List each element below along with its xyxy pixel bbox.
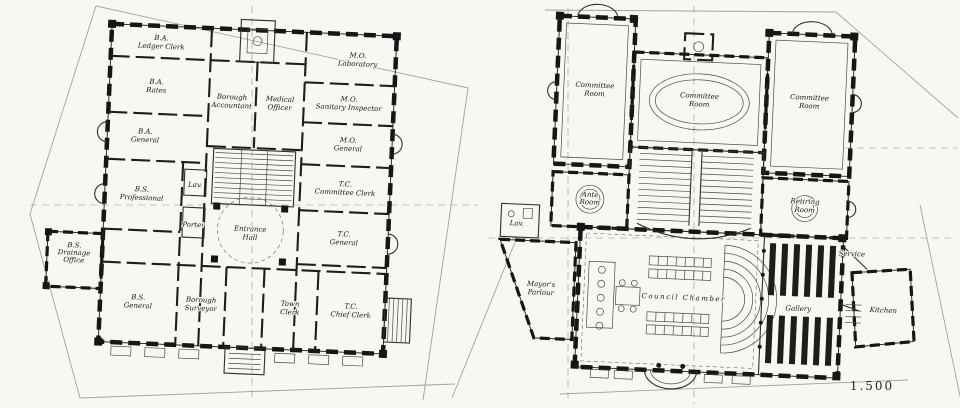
council-dais: [586, 261, 641, 331]
room-label-mayors-parlour: Mayor'sParlour: [525, 280, 555, 298]
room-label-ante-room: AnteRoom: [578, 190, 600, 206]
main-staircase: [211, 148, 295, 207]
room-label-committee-room-left: CommitteeRoom: [575, 81, 615, 99]
side-stair: [383, 298, 411, 343]
site-boundary-lines: [30, 6, 960, 400]
room-label-tc-chief-clerk: T.C.Chief Clerk: [330, 302, 371, 320]
room-label-medical-officer: MedicalOfficer: [264, 95, 294, 113]
room-label-mo-sanitary-inspector: M.O.Sanitary Inspector: [316, 94, 383, 113]
ground-floor-plan: B.A.Ledger ClerkB.A.RatesBoroughAccounta…: [39, 11, 423, 381]
room-label-mo-laboratory: M.O.Laboratory: [337, 51, 379, 69]
room-label-committee-room-centre: CommitteeRoom: [680, 91, 720, 109]
room-label-tc-committee-clerk: T.C.Committee Clerk: [315, 179, 376, 198]
room-label-borough-surveyor: BoroughSurveyor: [184, 295, 218, 313]
room-label-porter: Porter: [181, 220, 205, 229]
room-label-bs-professional: B.S.Professional: [119, 184, 164, 202]
lav-fixtures: [508, 208, 532, 219]
room-label-town-clerk: TownClerk: [280, 300, 300, 317]
room-label-ba-general: B.A.General: [131, 127, 160, 145]
floor-plan-drawing: B.A.Ledger ClerkB.A.RatesBoroughAccounta…: [0, 0, 960, 408]
room-label-committee-room-right: CommitteeRoom: [790, 93, 830, 111]
room-label-kitchen: Kitchen: [869, 306, 898, 315]
scale-label: 1.500: [850, 379, 894, 393]
apse: [644, 362, 697, 390]
room-label-bs-general: B.S.General: [124, 293, 153, 311]
room-label-service: Service: [838, 249, 865, 258]
room-label-borough-accountant: BoroughAccountant: [210, 92, 252, 110]
room-label-ba-ledger-clerk: B.A.Ledger Clerk: [137, 33, 185, 51]
entrance-porch: [224, 347, 265, 375]
first-floor-plan: CommitteeRoomCommitteeRoomCommitteeRoomA…: [494, 1, 928, 400]
room-label-retiring-room: RetiringRoom: [789, 197, 820, 215]
room-label-lav-ground: Lav.: [187, 181, 203, 190]
room-label-mo-general: M.O.General: [334, 136, 363, 154]
room-label-ba-rates: B.A.Rates: [145, 78, 167, 95]
round-tables: [575, 185, 818, 224]
room-label-gallery: Gallery: [785, 304, 812, 313]
room-label-tc-general: T.C.General: [330, 230, 359, 248]
drawing-page: B.A.Ledger ClerkB.A.RatesBoroughAccounta…: [0, 0, 960, 408]
first-floor-staircase: [636, 149, 754, 241]
room-label-entrance-hall: EntranceHall: [232, 225, 266, 243]
room-label-bs-drainage-office: B.S.DrainageOffice: [56, 241, 91, 265]
room-label-lav-first: Lav.: [509, 219, 525, 228]
room-label-council-chamber: Council Chamber: [641, 292, 726, 304]
